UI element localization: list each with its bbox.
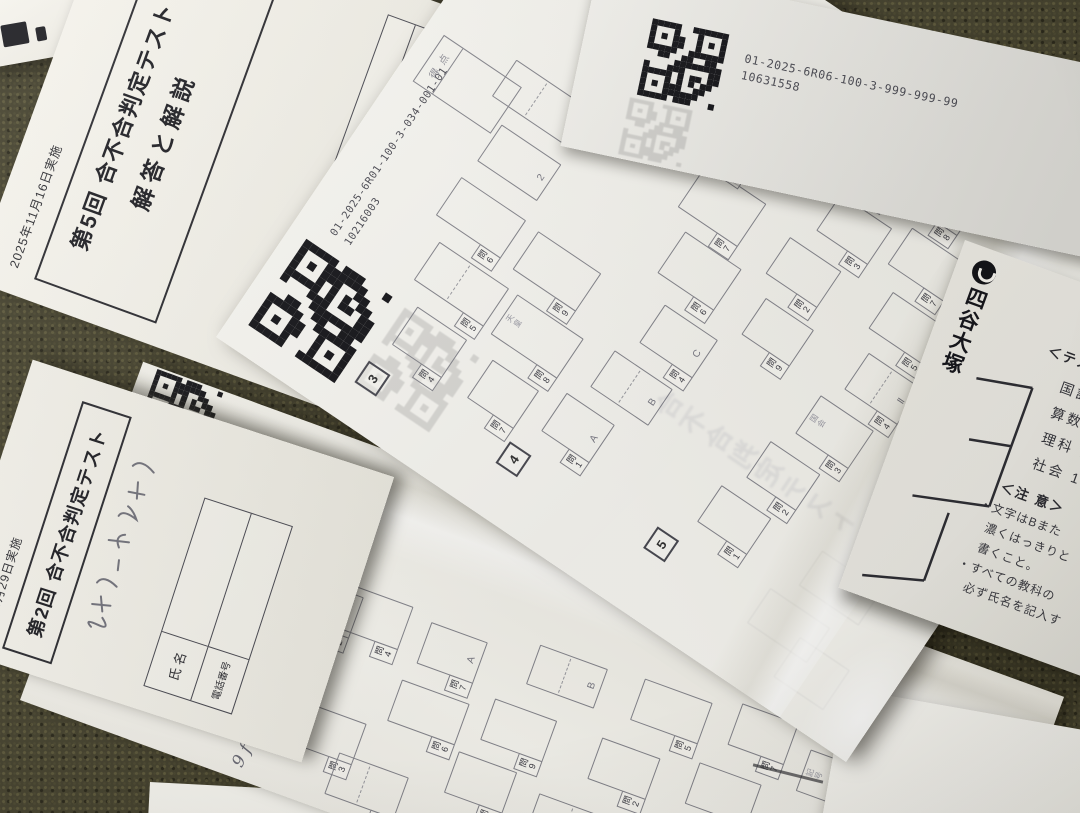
answer-cell: 問2 [766, 237, 842, 308]
print-fragment [0, 21, 29, 47]
qr-code-bleed-through [618, 97, 693, 167]
booklet2-title-box: 第2回 合不合判定テスト [2, 401, 132, 664]
qr-code [637, 18, 730, 111]
answer-cell: 問6 [685, 762, 762, 813]
answer-cell: 問2 [587, 737, 660, 800]
answer-cell: 2 [477, 124, 561, 201]
question-label: 問8 [473, 804, 502, 813]
print-fragment [35, 26, 47, 42]
section-marker: 5 [643, 526, 679, 562]
qr-module [707, 104, 714, 111]
question-label: 問5 [365, 810, 394, 813]
answer-cell: 問7 [467, 360, 539, 429]
qr-module [676, 162, 682, 167]
score-label: 得 点 [414, 36, 463, 94]
booklet2-name-fields: 氏 名 電話番号 [143, 498, 293, 715]
answer-cell: 問1A [541, 393, 615, 464]
answer-slot-tag: B [580, 665, 604, 706]
serial-code: 01-2025-6R06-100-3-999-999-99 10631558 [739, 50, 959, 129]
booklet5-title-box: 第5回 合不合判定テスト 解答と解説 [34, 0, 275, 324]
answer-slot-tag: A [577, 418, 611, 461]
answer-cell: 問9 [480, 698, 557, 762]
question-label: 問3 [819, 454, 849, 482]
answer-cell: 問1 [697, 485, 771, 555]
answer-cell: 問6 [436, 177, 526, 259]
question-label: 問9 [760, 352, 790, 380]
question-label: 問6 [426, 736, 455, 761]
answer-cell: 問3国会 [795, 395, 874, 469]
answer-cell: B [526, 645, 608, 709]
booklet2-title: 第2回 合不合判定テスト [15, 407, 119, 659]
question-label: 問4 [369, 641, 398, 666]
answer-slot-tag: A [459, 638, 484, 681]
answer-slot-tag: 2 [525, 157, 558, 198]
question-label: 問7 [484, 414, 514, 442]
answer-cell: C [524, 793, 614, 813]
question-label: 問1 [717, 540, 747, 568]
answer-cell: 問5 [324, 752, 409, 813]
answer-hint-note: 国会 [807, 411, 828, 430]
answer-slot-tag: C [680, 333, 714, 376]
question-label: 問9 [513, 753, 542, 778]
answer-hint-note: 天皇 [503, 311, 524, 330]
answer-cell: 問5 [630, 678, 713, 744]
question-label: 問3 [838, 250, 868, 278]
question-label: 問5 [669, 735, 698, 760]
question-label: 問2 [617, 790, 646, 813]
photo-of-test-papers: 第1回合不合判定テスト 6年 社会 解答用紙 （2025.4.6） 1 9 f … [0, 0, 1080, 813]
answer-cell: 問8 [444, 751, 517, 813]
section-marker: 4 [495, 441, 531, 477]
logo-mark-icon [969, 257, 1000, 288]
answer-cell: 問7A [416, 622, 487, 684]
